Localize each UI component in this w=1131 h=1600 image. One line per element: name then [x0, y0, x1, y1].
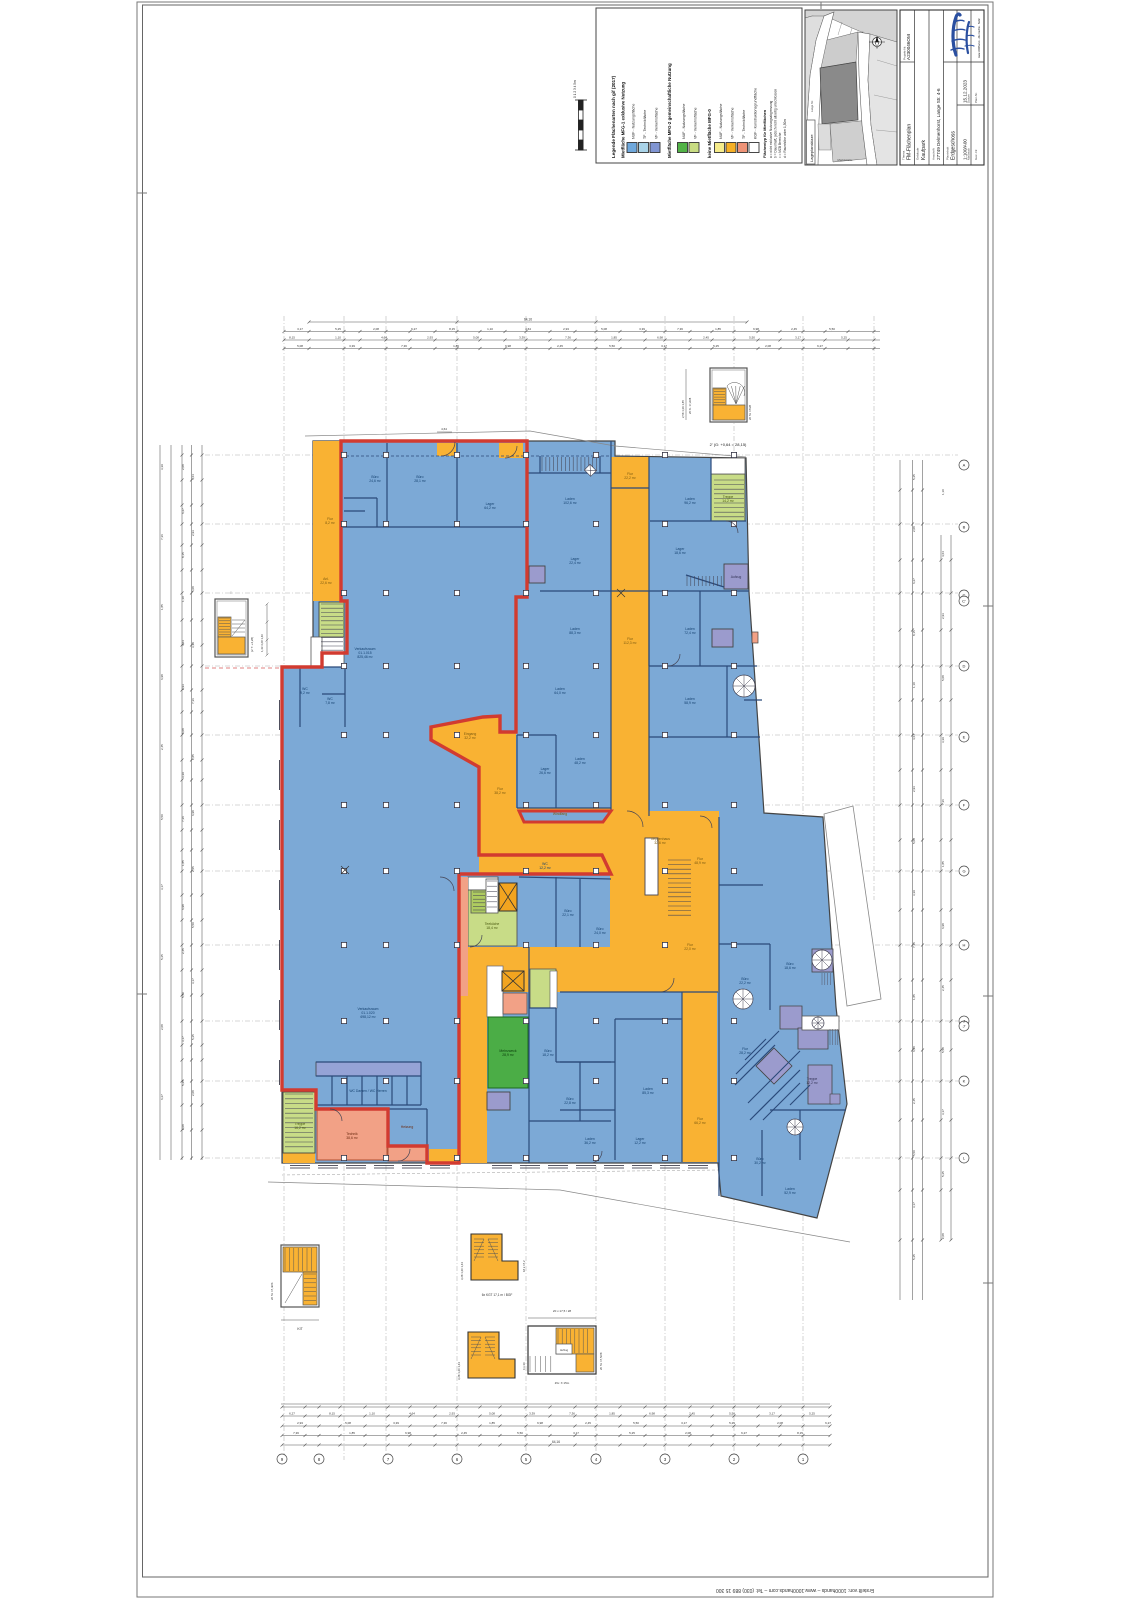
svg-text:72,4 m²: 72,4 m² — [684, 631, 696, 635]
svg-text:2,93: 2,93 — [427, 336, 433, 340]
svg-text:Aufzug: Aufzug — [731, 575, 742, 579]
svg-text:2,08: 2,08 — [160, 1024, 164, 1030]
svg-text:5,08: 5,08 — [912, 838, 916, 844]
svg-text:9,2 m²: 9,2 m² — [300, 691, 310, 695]
svg-text:22,4 m²: 22,4 m² — [569, 561, 581, 565]
svg-text:J': J' — [963, 1024, 966, 1029]
svg-text:0 1 2 3 4 5m: 0 1 2 3 4 5m — [573, 80, 577, 98]
svg-text:6,27: 6,27 — [817, 344, 823, 348]
svg-text:Legende Flächenarten nach gif: Legende Flächenarten nach gif (2017) — [611, 75, 616, 158]
svg-text:5,25: 5,25 — [160, 954, 164, 960]
svg-text:1,85: 1,85 — [609, 1412, 615, 1416]
svg-text:1,10: 1,10 — [912, 682, 916, 688]
svg-text:36,2 m²: 36,2 m² — [584, 1141, 596, 1145]
svg-text:C': C' — [962, 599, 966, 604]
svg-text:3,17: 3,17 — [573, 1431, 579, 1435]
svg-text:28,2 m²: 28,2 m² — [739, 1051, 751, 1055]
svg-text:18,6 m²: 18,6 m² — [674, 551, 686, 555]
svg-text:2,08: 2,08 — [765, 344, 771, 348]
svg-text:6,27: 6,27 — [912, 578, 916, 584]
svg-text:3,17: 3,17 — [941, 1109, 945, 1115]
svg-text:20 x 17,5 / 28: 20 x 17,5 / 28 — [553, 1309, 572, 1313]
svg-text:Thema: Thema — [902, 150, 906, 160]
svg-text:38,6 m²: 38,6 m² — [346, 1136, 358, 1140]
svg-text:Datum: Datum — [967, 94, 971, 103]
svg-text:20 St. 17,5/28: 20 St. 17,5/28 — [599, 1352, 603, 1370]
svg-text:keine Mietfläche MFG-0: keine Mietfläche MFG-0 — [707, 109, 712, 158]
svg-text:7,36: 7,36 — [293, 1431, 299, 1435]
svg-text:5,25: 5,25 — [912, 474, 916, 480]
svg-text:6,98: 6,98 — [537, 1421, 543, 1425]
svg-text:2,08: 2,08 — [373, 327, 379, 331]
svg-text:5,08: 5,08 — [473, 336, 479, 340]
svg-text:7,8 m²: 7,8 m² — [325, 701, 335, 705]
svg-text:2,93: 2,93 — [297, 1421, 303, 1425]
svg-text:3,39: 3,39 — [912, 890, 916, 896]
svg-text:5,25: 5,25 — [181, 1080, 185, 1086]
svg-text:12,2 m²: 12,2 m² — [806, 1081, 818, 1085]
svg-text:Mietfläche MFG-1 exklusive Nut: Mietfläche MFG-1 exklusive Nutzung — [621, 82, 626, 158]
svg-text:2,08: 2,08 — [777, 1421, 783, 1425]
svg-text:a = nicht exklusive Nutzungsab: a = nicht exklusive Nutzungsabgrenzung — [769, 100, 773, 158]
svg-text:1,85: 1,85 — [181, 860, 185, 866]
svg-text:5,25: 5,25 — [729, 1421, 735, 1425]
svg-text:Aufzug: Aufzug — [560, 1348, 569, 1352]
svg-text:6,98: 6,98 — [405, 1431, 411, 1435]
svg-text:22,2 m²: 22,2 m² — [624, 476, 636, 480]
svg-text:88,3 m²: 88,3 m² — [569, 631, 581, 635]
svg-text:5,08: 5,08 — [191, 586, 195, 592]
svg-text:2,08: 2,08 — [685, 1431, 691, 1435]
svg-text:6,27: 6,27 — [181, 508, 185, 514]
svg-text:5,08: 5,08 — [345, 1421, 351, 1425]
svg-text:KIT: KIT — [297, 1327, 302, 1331]
svg-text:3,39: 3,39 — [181, 772, 185, 778]
svg-text:12,2 m²: 12,2 m² — [539, 866, 551, 870]
svg-text:5,50: 5,50 — [912, 1150, 916, 1156]
svg-text:2' (G: +0,64 = 28,15): 2' (G: +0,64 = 28,15) — [710, 442, 747, 447]
svg-text:2,45: 2,45 — [585, 1421, 591, 1425]
svg-text:B: B — [963, 525, 966, 530]
svg-text:4,64: 4,64 — [191, 474, 195, 480]
svg-text:Planinhalt: Planinhalt — [946, 147, 950, 160]
svg-text:22,8 m²: 22,8 m² — [564, 1101, 576, 1105]
svg-text:64,16: 64,16 — [552, 1440, 560, 1444]
svg-text:1,10: 1,10 — [487, 327, 493, 331]
svg-text:28,9 m²: 28,9 m² — [502, 1053, 514, 1057]
svg-text:5,08: 5,08 — [941, 675, 945, 681]
svg-text:4,64: 4,64 — [941, 551, 945, 557]
svg-text:2,93: 2,93 — [191, 530, 195, 536]
svg-text:5,25: 5,25 — [912, 1254, 916, 1260]
svg-text:1,85: 1,85 — [611, 336, 617, 340]
svg-text:4,64: 4,64 — [181, 640, 185, 646]
svg-text:2,93: 2,93 — [563, 327, 569, 331]
svg-text:1,85: 1,85 — [453, 344, 459, 348]
svg-text:14,2 m²: 14,2 m² — [722, 499, 734, 503]
svg-text:7,36: 7,36 — [912, 942, 916, 948]
svg-text:1,10: 1,10 — [181, 596, 185, 602]
svg-text:www.1000hands · Alle Rechte ·: www.1000hands · Alle Rechte · Berlin — [978, 17, 981, 58]
svg-text:3,39: 3,39 — [191, 642, 195, 648]
svg-text:52,9 m²: 52,9 m² — [784, 1191, 796, 1195]
svg-text:Flächentyp für Mietflächen: Flächentyp für Mietflächen — [763, 109, 767, 158]
svg-text:Erstellt von: 1000hands – ww: Erstellt von: 1000hands – www.1000hands.… — [716, 1587, 874, 1593]
svg-text:1,43 3,28 1,40: 1,43 3,28 1,40 — [260, 634, 264, 652]
svg-text:d = Raumhöhe unter 1,50m: d = Raumhöhe unter 1,50m — [783, 119, 787, 158]
svg-text:7,36: 7,36 — [181, 816, 185, 822]
svg-text:A230046OM: A230046OM — [906, 34, 911, 60]
svg-text:6,27: 6,27 — [741, 1431, 747, 1435]
svg-text:Lange Str.: Lange Str. — [810, 100, 814, 112]
svg-text:5,50: 5,50 — [517, 1431, 523, 1435]
svg-text:26 St. 17/28: 26 St. 17/28 — [748, 404, 752, 420]
svg-text:5,25: 5,25 — [841, 336, 847, 340]
svg-text:2,45: 2,45 — [703, 336, 709, 340]
svg-text:102,6 m²: 102,6 m² — [563, 501, 577, 505]
svg-text:825,46 m²: 825,46 m² — [357, 655, 373, 659]
svg-text:6,98: 6,98 — [912, 1046, 916, 1052]
svg-text:1,85: 1,85 — [715, 327, 721, 331]
svg-text:5,25: 5,25 — [629, 1431, 635, 1435]
svg-text:5,08: 5,08 — [297, 344, 303, 348]
svg-text:2,08: 2,08 — [191, 1090, 195, 1096]
svg-text:6 x 30: 6 x 30 — [522, 1362, 526, 1370]
svg-text:6,27: 6,27 — [289, 1412, 295, 1416]
svg-text:1,85: 1,85 — [912, 994, 916, 1000]
svg-text:E: E — [963, 735, 966, 740]
svg-text:1,85: 1,85 — [941, 861, 945, 867]
svg-text:2,08: 2,08 — [941, 1233, 945, 1239]
svg-text:5,50: 5,50 — [749, 336, 755, 340]
svg-text:5,50: 5,50 — [191, 922, 195, 928]
svg-text:2,93: 2,93 — [941, 613, 945, 619]
svg-text:24,6 m²: 24,6 m² — [369, 479, 381, 483]
svg-text:8,2 m²: 8,2 m² — [325, 521, 335, 525]
svg-text:22,1 m²: 22,1 m² — [562, 913, 574, 917]
svg-text:2,45: 2,45 — [191, 866, 195, 872]
svg-text:Maßstab: Maßstab — [967, 148, 971, 160]
svg-text:3,39: 3,39 — [393, 1421, 399, 1425]
svg-text:64,16: 64,16 — [524, 318, 532, 322]
svg-text:3,39: 3,39 — [941, 737, 945, 743]
svg-text:1,10: 1,10 — [941, 489, 945, 495]
svg-text:26,6 m²: 26,6 m² — [539, 771, 551, 775]
svg-text:2,45: 2,45 — [557, 344, 563, 348]
svg-text:7,36: 7,36 — [441, 1421, 447, 1425]
svg-text:3,39: 3,39 — [639, 327, 645, 331]
svg-text:7,36: 7,36 — [160, 534, 164, 540]
svg-text:7,36: 7,36 — [565, 336, 571, 340]
svg-text:5,25: 5,25 — [809, 1412, 815, 1416]
svg-text:6,98: 6,98 — [657, 336, 663, 340]
svg-text:6,98: 6,98 — [181, 904, 185, 910]
svg-text:6,98: 6,98 — [505, 344, 511, 348]
svg-text:5,25: 5,25 — [941, 1171, 945, 1177]
svg-text:c = MZB Bereiche: c = MZB Bereiche — [778, 132, 782, 158]
svg-text:1,85: 1,85 — [349, 1431, 355, 1435]
svg-text:2,93: 2,93 — [912, 786, 916, 792]
svg-text:64,2 m²: 64,2 m² — [484, 506, 496, 510]
svg-text:3,17: 3,17 — [191, 978, 195, 984]
svg-text:H: H — [963, 943, 966, 948]
svg-text:3,17: 3,17 — [681, 1421, 687, 1425]
svg-text:A: A — [963, 463, 966, 468]
svg-text:58,9 m²: 58,9 m² — [684, 701, 696, 705]
svg-text:6,98: 6,98 — [160, 674, 164, 680]
svg-text:5,50: 5,50 — [941, 1047, 945, 1053]
svg-text:6,98: 6,98 — [191, 810, 195, 816]
svg-text:I: I — [231, 591, 232, 595]
svg-text:Plan-Nr.: Plan-Nr. — [974, 92, 978, 103]
svg-text:3,28 1,40 1,43: 3,28 1,40 1,43 — [457, 1362, 461, 1380]
svg-text:3,17: 3,17 — [769, 1412, 775, 1416]
svg-text:4,64: 4,64 — [441, 427, 447, 431]
svg-text:NUF - Nutzungsfläche: NUF - Nutzungsfläche — [719, 104, 723, 139]
svg-text:VF - Verkehrsfläche: VF - Verkehrsfläche — [731, 107, 735, 139]
svg-text:6,27: 6,27 — [825, 1421, 831, 1425]
svg-text:3,28 1,40 1,43: 3,28 1,40 1,43 — [460, 1262, 464, 1280]
svg-text:3,39: 3,39 — [160, 464, 164, 470]
svg-text:WC Damen / WC Herren: WC Damen / WC Herren — [349, 1089, 386, 1093]
svg-text:16,2 m²: 16,2 m² — [294, 1126, 306, 1130]
svg-text:32,2 m²: 32,2 m² — [464, 736, 476, 740]
svg-text:VF - Verkehrsfläche: VF - Verkehrsfläche — [694, 107, 698, 139]
svg-text:Gebäude: Gebäude — [916, 147, 920, 160]
svg-text:28,1 m²: 28,1 m² — [414, 479, 426, 483]
svg-text:5,50: 5,50 — [181, 992, 185, 998]
svg-text:6,98: 6,98 — [649, 1412, 655, 1416]
svg-text:2,08: 2,08 — [181, 1124, 185, 1130]
svg-text:5,25: 5,25 — [335, 327, 341, 331]
svg-text:3,17: 3,17 — [661, 344, 667, 348]
svg-text:6,98: 6,98 — [941, 923, 945, 929]
svg-text:3,17: 3,17 — [912, 1202, 916, 1208]
svg-text:5,25: 5,25 — [713, 344, 719, 348]
svg-text:48,2 m²: 48,2 m² — [574, 761, 586, 765]
svg-text:85,3 m²: 85,3 m² — [642, 1091, 654, 1095]
svg-text:1,10: 1,10 — [335, 336, 341, 340]
svg-text:FM-Flächenplan: FM-Flächenplan — [907, 124, 913, 160]
svg-text:D: D — [963, 664, 966, 669]
svg-text:32,6 m²: 32,6 m² — [654, 841, 666, 845]
svg-text:4,64: 4,64 — [381, 336, 387, 340]
svg-text:2,58 1,39 1,85: 2,58 1,39 1,85 — [681, 400, 685, 418]
svg-text:18 x 17,2: 18 x 17,2 — [522, 1260, 526, 1272]
svg-text:30,2 m²: 30,2 m² — [754, 1161, 766, 1165]
svg-text:2,08: 2,08 — [912, 526, 916, 532]
svg-text:2,93: 2,93 — [181, 684, 185, 690]
svg-text:2,45: 2,45 — [689, 1412, 695, 1416]
svg-text:22,0 m²: 22,0 m² — [684, 947, 696, 951]
svg-text:3,17: 3,17 — [297, 327, 303, 331]
svg-text:Marktstraße: Marktstraße — [838, 158, 853, 162]
svg-text:2,45: 2,45 — [791, 327, 797, 331]
svg-text:22,6 m²: 22,6 m² — [320, 581, 332, 585]
svg-text:8,15: 8,15 — [449, 327, 455, 331]
svg-text:26 St. 17,2/28: 26 St. 17,2/28 — [688, 397, 692, 414]
svg-text:Windfang: Windfang — [553, 812, 567, 816]
svg-text:8,15: 8,15 — [797, 1431, 803, 1435]
svg-text:5,08: 5,08 — [601, 327, 607, 331]
svg-text:6x KGT 17,1 m / BGF: 6x KGT 17,1 m / BGF — [482, 1293, 513, 1297]
svg-text:3,17: 3,17 — [181, 1036, 185, 1042]
svg-text:6,98: 6,98 — [753, 327, 759, 331]
svg-text:5,25: 5,25 — [191, 1034, 195, 1040]
svg-text:3,39: 3,39 — [519, 336, 525, 340]
svg-text:7,36: 7,36 — [677, 327, 683, 331]
svg-text:18,6 m²: 18,6 m² — [784, 966, 796, 970]
svg-text:2,45: 2,45 — [912, 1098, 916, 1104]
svg-text:Projekt-Nr.: Projekt-Nr. — [903, 46, 907, 60]
svg-text:Erdgeschoss: Erdgeschoss — [951, 131, 957, 160]
svg-text:TF - Technikfläche: TF - Technikfläche — [643, 110, 647, 139]
svg-text:Gez.-Nr.: Gez.-Nr. — [974, 149, 978, 160]
svg-text:2,45: 2,45 — [160, 744, 164, 750]
svg-text:5,50: 5,50 — [729, 1412, 735, 1416]
svg-text:1,10: 1,10 — [369, 1412, 375, 1416]
svg-text:KGF - Konstruktionsgrundfläche: KGF - Konstruktionsgrundfläche — [754, 88, 758, 139]
svg-text:TF - Technikfläche: TF - Technikfläche — [742, 110, 746, 139]
svg-text:NUF - Nutzungsfläche: NUF - Nutzungsfläche — [632, 104, 636, 139]
svg-text:2,45: 2,45 — [181, 948, 185, 954]
svg-text:2,08: 2,08 — [181, 464, 185, 470]
svg-text:2,45: 2,45 — [941, 985, 945, 991]
svg-text:C: C — [963, 593, 966, 598]
svg-text:112,3 m²: 112,3 m² — [623, 641, 637, 645]
svg-text:8,15: 8,15 — [912, 630, 916, 636]
svg-text:K: K — [963, 1079, 966, 1084]
svg-text:27749 Delmenhorst, Lange Str.: 27749 Delmenhorst, Lange Str. 4-6 — [936, 88, 941, 160]
svg-text:64,0 m²: 64,0 m² — [554, 691, 566, 695]
svg-text:6,27: 6,27 — [411, 327, 417, 331]
svg-text:7,36: 7,36 — [191, 698, 195, 704]
svg-text:96,2 m²: 96,2 m² — [684, 501, 696, 505]
svg-text:3,17: 3,17 — [795, 336, 801, 340]
svg-text:1,85: 1,85 — [489, 1421, 495, 1425]
svg-text:18,2 m²: 18,2 m² — [542, 1053, 554, 1057]
svg-text:7,36: 7,36 — [569, 1412, 575, 1416]
svg-text:48,9 m²: 48,9 m² — [694, 861, 706, 865]
svg-text:698,12 m²: 698,12 m² — [360, 1015, 376, 1019]
svg-text:8,15: 8,15 — [181, 552, 185, 558]
svg-text:7,36: 7,36 — [401, 344, 407, 348]
svg-text:G: G — [962, 869, 965, 874]
svg-text:3,39: 3,39 — [529, 1412, 535, 1416]
svg-text:22,2 m²: 22,2 m² — [739, 981, 751, 985]
svg-text:5,50: 5,50 — [609, 344, 615, 348]
svg-text:3,17: 3,17 — [160, 884, 164, 890]
svg-text:(2 T: +4,28): (2 T: +4,28) — [250, 637, 254, 652]
svg-text:Kaufpark: Kaufpark — [921, 139, 927, 160]
svg-text:66,2 m²: 66,2 m² — [694, 1121, 706, 1125]
svg-text:5,50: 5,50 — [633, 1421, 639, 1425]
svg-text:12,2 m²: 12,2 m² — [634, 1141, 646, 1145]
svg-text:Anschrift: Anschrift — [932, 148, 936, 160]
svg-text:b = Dauerhaft, jedoch nicht al: b = Dauerhaft, jedoch nicht allseitig um… — [774, 89, 778, 158]
svg-text:5,08: 5,08 — [181, 728, 185, 734]
svg-text:1,85: 1,85 — [191, 754, 195, 760]
svg-text:5,08: 5,08 — [489, 1412, 495, 1416]
svg-text:7,36: 7,36 — [941, 799, 945, 805]
svg-text:2,93: 2,93 — [449, 1412, 455, 1416]
svg-text:NUF - Nutzungsfläche: NUF - Nutzungsfläche — [682, 104, 686, 139]
svg-text:4,64: 4,64 — [409, 1412, 415, 1416]
svg-text:4,64: 4,64 — [912, 734, 916, 740]
svg-text:24,0 m²: 24,0 m² — [594, 931, 606, 935]
svg-text:ZG: X 15m: ZG: X 15m — [555, 1381, 570, 1385]
svg-text:5,50: 5,50 — [829, 327, 835, 331]
svg-text:4,64: 4,64 — [525, 327, 531, 331]
svg-text:8,15: 8,15 — [329, 1412, 335, 1416]
svg-text:8,15: 8,15 — [289, 336, 295, 340]
svg-text:3,39: 3,39 — [349, 344, 355, 348]
svg-text:6,27: 6,27 — [160, 1094, 164, 1100]
svg-text:1,85: 1,85 — [160, 604, 164, 610]
svg-text:Heizung: Heizung — [401, 1125, 414, 1129]
svg-text:Mietfläche MFG-2 gemeinschaftl: Mietfläche MFG-2 gemeinschaftliche Nutzu… — [667, 63, 672, 158]
svg-text:38,2 m²: 38,2 m² — [494, 791, 506, 795]
svg-text:VF - Verkehrsfläche: VF - Verkehrsfläche — [655, 107, 659, 139]
svg-text:26 St. 17,4/26: 26 St. 17,4/26 — [270, 1282, 274, 1300]
svg-text:5,50: 5,50 — [160, 814, 164, 820]
svg-text:18,4 m²: 18,4 m² — [486, 926, 498, 930]
svg-text:Lageplanskizze: Lageplanskizze — [809, 134, 814, 162]
svg-text:2,45: 2,45 — [461, 1431, 467, 1435]
